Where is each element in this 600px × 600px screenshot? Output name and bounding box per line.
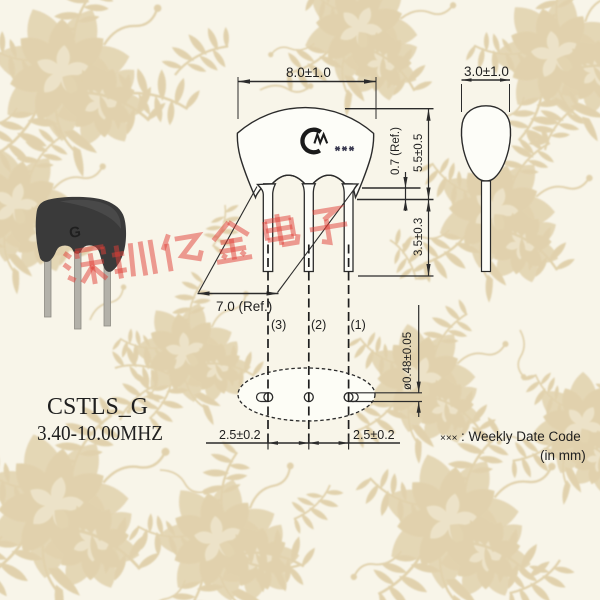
svg-text:G: G xyxy=(68,223,82,241)
svg-text:5.5±0.5: 5.5±0.5 xyxy=(413,134,425,172)
svg-text:3.0±1.0: 3.0±1.0 xyxy=(464,64,509,79)
svg-text:CSTLS_G: CSTLS_G xyxy=(47,393,148,420)
svg-text:ø0.48±0.05: ø0.48±0.05 xyxy=(402,332,414,390)
svg-text:(2): (2) xyxy=(311,318,326,332)
svg-text:0.7 (Ref.): 0.7 (Ref.) xyxy=(390,127,402,175)
svg-text:8.0±1.0: 8.0±1.0 xyxy=(286,65,331,80)
svg-text:(in mm): (in mm) xyxy=(540,448,586,463)
svg-text:2.5±0.2: 2.5±0.2 xyxy=(219,428,261,442)
svg-text:×××: ××× xyxy=(440,433,458,444)
svg-text:2.5±0.2: 2.5±0.2 xyxy=(353,428,395,442)
svg-text:(1): (1) xyxy=(351,318,366,332)
svg-text:: Weekly Date Code: : Weekly Date Code xyxy=(461,429,581,444)
svg-text:3.5±0.3: 3.5±0.3 xyxy=(413,218,425,256)
svg-text:3.40-10.00MHZ: 3.40-10.00MHZ xyxy=(37,421,163,445)
svg-text:7.0 (Ref.): 7.0 (Ref.) xyxy=(216,299,272,314)
svg-text:(3): (3) xyxy=(271,318,286,332)
